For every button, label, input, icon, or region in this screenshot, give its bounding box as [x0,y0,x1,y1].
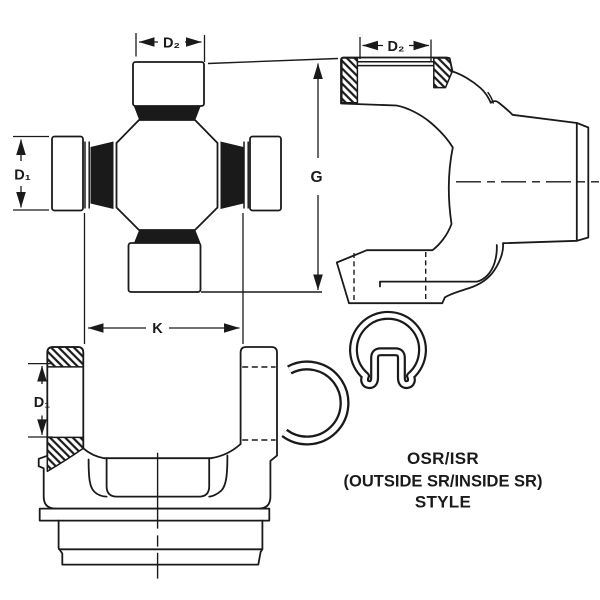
style-caption: OSR/ISR (OUTSIDE SR/INSIDE SR) STYLE [344,449,543,512]
saddle-groove-right [209,456,227,497]
cross-journal-figure [52,62,281,292]
caption-line-2: (OUTSIDE SR/INSIDE SR) [344,473,543,491]
end-yoke-outline [337,58,589,304]
ujoint-osr-isr-diagram: D₂ D₁ G K D₂ D₁ [0,0,600,600]
right-ear-hidden-lines [242,367,275,440]
ear-hatch-bottom [47,437,83,471]
caption-line-1: OSR/ISR [407,449,479,468]
cross-seal-bands [91,107,244,244]
lug-hidden-lines [354,252,426,301]
cross-top-bearing-cup [133,62,204,106]
diagram-canvas: D₂ D₁ G K D₂ D₁ [0,0,600,600]
g-reference-line-top [208,59,338,64]
cross-d1-label: D₁ [14,168,30,184]
base-flange-outline [40,509,270,521]
end-yoke-side-figure [337,58,599,304]
cross-d2-label: D₂ [163,36,180,52]
cross-bottom-bearing-cup [129,243,201,292]
cross-dimensions [13,33,338,344]
caption-line-3: STYLE [415,493,471,512]
outside-snap-ring [284,365,344,440]
cross-right-bearing-cup [250,137,281,211]
cap-hatch-right [434,58,453,88]
front-d1-label: D₁ [34,395,50,411]
cap-groove-lines [358,62,434,66]
ear-hatch-top [47,347,83,367]
g-label: G [310,169,322,186]
cross-center-body [117,120,218,230]
yoke-front-figure [39,347,277,579]
side-d2-label: D₂ [388,39,405,55]
cross-left-bearing-cup [52,137,83,211]
lug-web-inner-line [380,245,497,287]
saddle-seat-line [83,444,240,458]
k-label: K [152,321,163,337]
saddle-groove-left [89,460,107,497]
cap-hatch-left [342,58,358,103]
inside-snap-ring [354,315,423,384]
base-block-outline [59,521,263,565]
